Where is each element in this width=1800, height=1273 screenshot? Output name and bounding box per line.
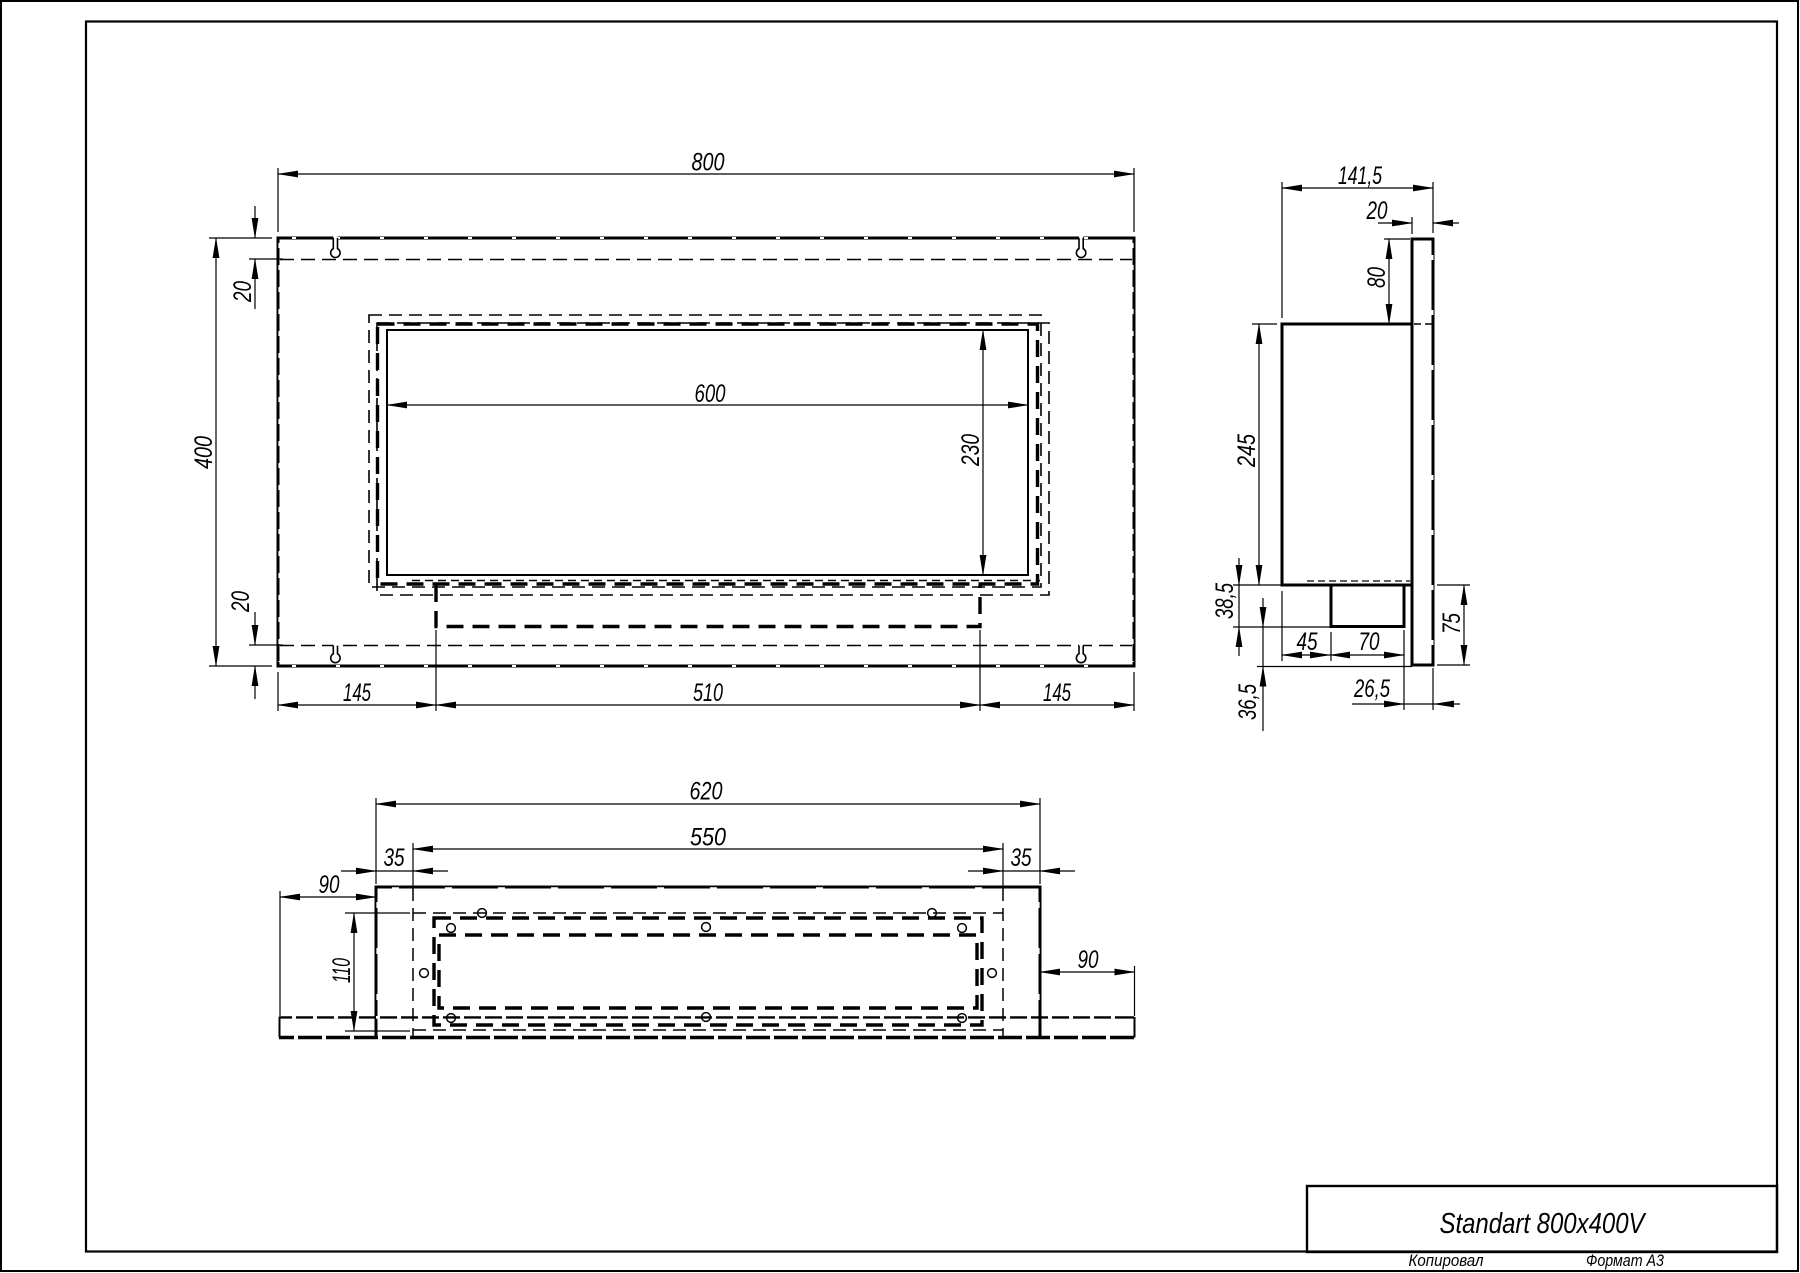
svg-text:36,5: 36,5: [1234, 684, 1262, 720]
svg-text:Формат А3: Формат А3: [1586, 1251, 1664, 1270]
svg-text:600: 600: [695, 380, 726, 408]
svg-text:45: 45: [1297, 628, 1318, 656]
svg-text:90: 90: [319, 871, 340, 899]
svg-text:80: 80: [1363, 267, 1391, 288]
svg-text:800: 800: [692, 149, 725, 177]
svg-text:20: 20: [227, 591, 255, 613]
svg-text:110: 110: [328, 958, 356, 983]
svg-text:20: 20: [229, 281, 257, 303]
svg-text:145: 145: [1043, 679, 1071, 707]
svg-text:26,5: 26,5: [1353, 675, 1390, 703]
svg-text:75: 75: [1438, 613, 1466, 634]
svg-text:35: 35: [384, 844, 405, 872]
svg-text:245: 245: [1233, 434, 1261, 468]
svg-text:400: 400: [190, 436, 218, 469]
svg-text:620: 620: [690, 778, 723, 806]
svg-text:35: 35: [1011, 844, 1032, 872]
svg-text:90: 90: [1078, 946, 1099, 974]
svg-text:20: 20: [1366, 197, 1388, 225]
svg-text:550: 550: [690, 824, 726, 852]
svg-text:38,5: 38,5: [1211, 583, 1239, 619]
svg-text:70: 70: [1359, 628, 1380, 656]
svg-text:Копировал: Копировал: [1409, 1251, 1484, 1270]
svg-text:510: 510: [693, 679, 723, 707]
svg-text:141,5: 141,5: [1338, 162, 1382, 190]
svg-text:145: 145: [343, 679, 371, 707]
svg-text:Standart 800x400V: Standart 800x400V: [1440, 1208, 1647, 1240]
svg-text:230: 230: [957, 434, 985, 467]
